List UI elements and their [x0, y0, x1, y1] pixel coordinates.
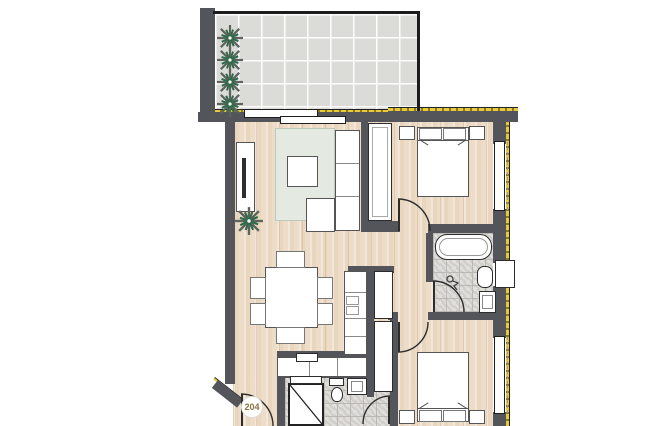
floor-plan-canvas: 204	[0, 0, 662, 426]
dining-chair	[250, 277, 266, 299]
living-bedroom1-wall	[361, 121, 368, 225]
dining-chair	[317, 277, 333, 299]
right-wall-segment-2	[493, 209, 506, 263]
wc-door	[363, 396, 390, 424]
bathroom-door	[433, 281, 464, 312]
left-exterior-wall	[225, 112, 235, 384]
dining-chair	[276, 327, 305, 344]
counter-divider	[337, 358, 338, 376]
dining-chair	[317, 303, 333, 325]
pillow	[419, 410, 442, 422]
pillow	[443, 128, 466, 140]
toilet	[331, 387, 343, 402]
blanket-edge	[418, 140, 468, 141]
pillow	[419, 128, 442, 140]
bathroom-left-wall	[426, 233, 433, 282]
sliding-door-panel-inner	[280, 116, 346, 124]
exterior-duct-box	[495, 260, 515, 288]
nightstand	[399, 126, 415, 140]
wardrobe-inner-line	[372, 127, 388, 217]
bathtub-inner	[439, 238, 488, 256]
bedroom1-door	[398, 199, 430, 231]
sofa-chaise	[306, 198, 335, 232]
tall-cabinet	[374, 271, 393, 319]
dining-chair	[276, 251, 305, 268]
kitchen-counter-horizontal	[277, 357, 367, 377]
unit-number-badge: 204	[241, 396, 263, 418]
terrace-top-edge	[213, 11, 420, 14]
sofa-cushion-line	[336, 196, 359, 197]
terrace-right-edge	[417, 11, 420, 112]
cooktop	[296, 353, 318, 362]
counter-divider	[345, 336, 366, 337]
kitchen-sink-drainer	[346, 306, 359, 315]
toilet-tank	[329, 378, 344, 386]
plant-icon	[216, 90, 244, 118]
window-outer-dash	[507, 142, 508, 210]
window-bedroom2	[494, 336, 505, 414]
wc-sink-basin	[351, 381, 363, 392]
bedroom1-bottom-wall-left	[361, 221, 400, 232]
nightstand	[469, 126, 485, 140]
bathroom-top-wall	[428, 224, 503, 233]
pillow	[443, 410, 466, 422]
terrace-floor	[215, 14, 417, 112]
toilet	[477, 266, 493, 288]
dining-chair	[250, 303, 266, 325]
shower-entry-bar	[290, 376, 322, 384]
nightstand	[469, 410, 485, 424]
window-bedroom1	[494, 141, 505, 211]
dining-table	[265, 267, 318, 328]
terrace-planter-wall	[200, 8, 215, 114]
shower	[288, 383, 324, 426]
tall-cabinet	[374, 321, 393, 392]
blanket-edge	[418, 408, 468, 409]
sofa	[335, 130, 360, 231]
right-wall-segment-4	[493, 412, 506, 426]
plant-icon	[234, 206, 264, 236]
kitchen-sink	[346, 296, 359, 305]
bedroom2-door	[398, 322, 428, 352]
unit-number-label: 204	[244, 402, 259, 412]
bathroom-bottom-wall	[428, 312, 503, 320]
sofa-cushion-line	[336, 163, 359, 164]
coffee-table	[287, 156, 318, 187]
tv-icon	[242, 158, 246, 198]
wc-left-wall	[277, 377, 285, 426]
bathroom-sink-basin	[482, 295, 493, 309]
counter-divider	[345, 318, 366, 319]
window-outer-dash	[507, 337, 508, 413]
nightstand	[399, 410, 415, 424]
counter-divider	[345, 292, 366, 293]
